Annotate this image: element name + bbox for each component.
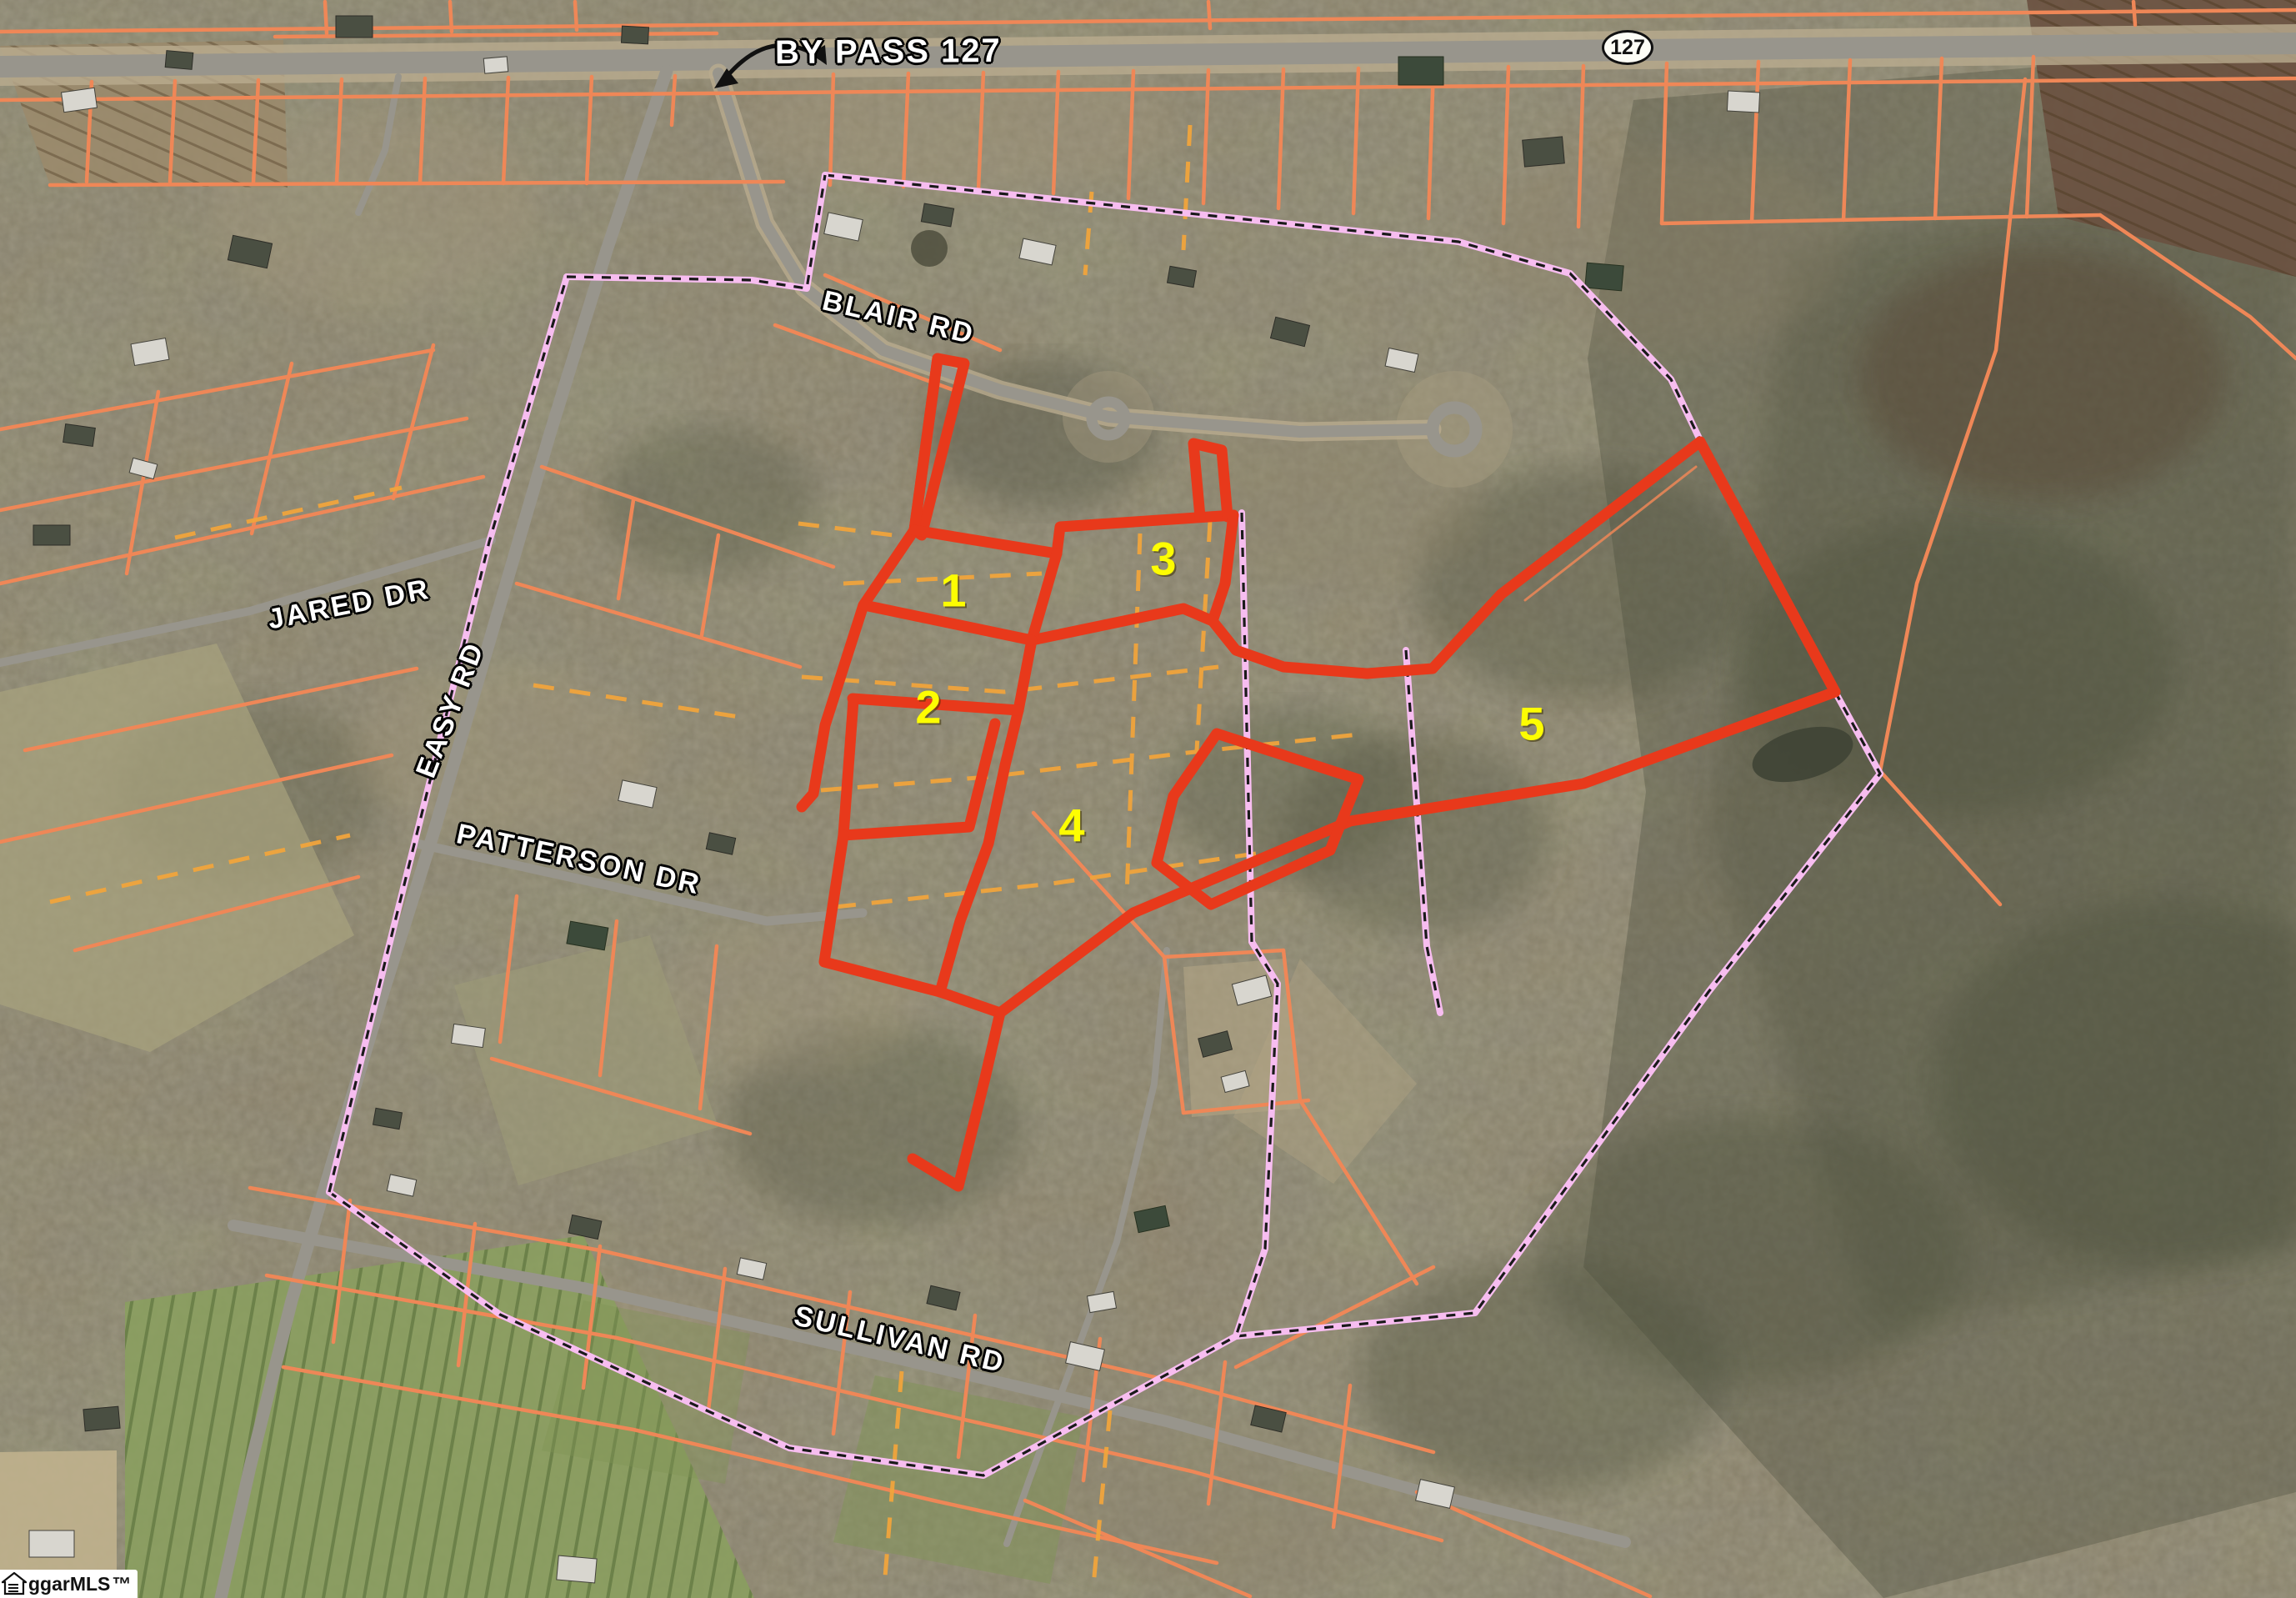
parcel-label-2[interactable]: 2	[915, 680, 941, 734]
parcel-label-5[interactable]: 5	[1518, 697, 1544, 751]
mls-watermark: ggarMLS™	[0, 1570, 138, 1598]
highway-label: BY PASS 127	[775, 33, 1002, 72]
aerial-parcel-map[interactable]: BY PASS 127 127 BLAIR RD JARED DR EASY R…	[0, 0, 2296, 1598]
route-127-number: 127	[1610, 36, 1645, 60]
watermark-tm: ™	[112, 1573, 131, 1595]
map-canvas	[0, 0, 2296, 1598]
watermark-text: ggarMLS	[28, 1573, 110, 1595]
parcel-label-4[interactable]: 4	[1058, 799, 1084, 853]
house-logo-icon	[2, 1572, 27, 1595]
route-127-shield-icon: 127	[1602, 30, 1653, 65]
parcel-label-1[interactable]: 1	[940, 564, 966, 618]
parcel-label-3[interactable]: 3	[1150, 532, 1176, 586]
